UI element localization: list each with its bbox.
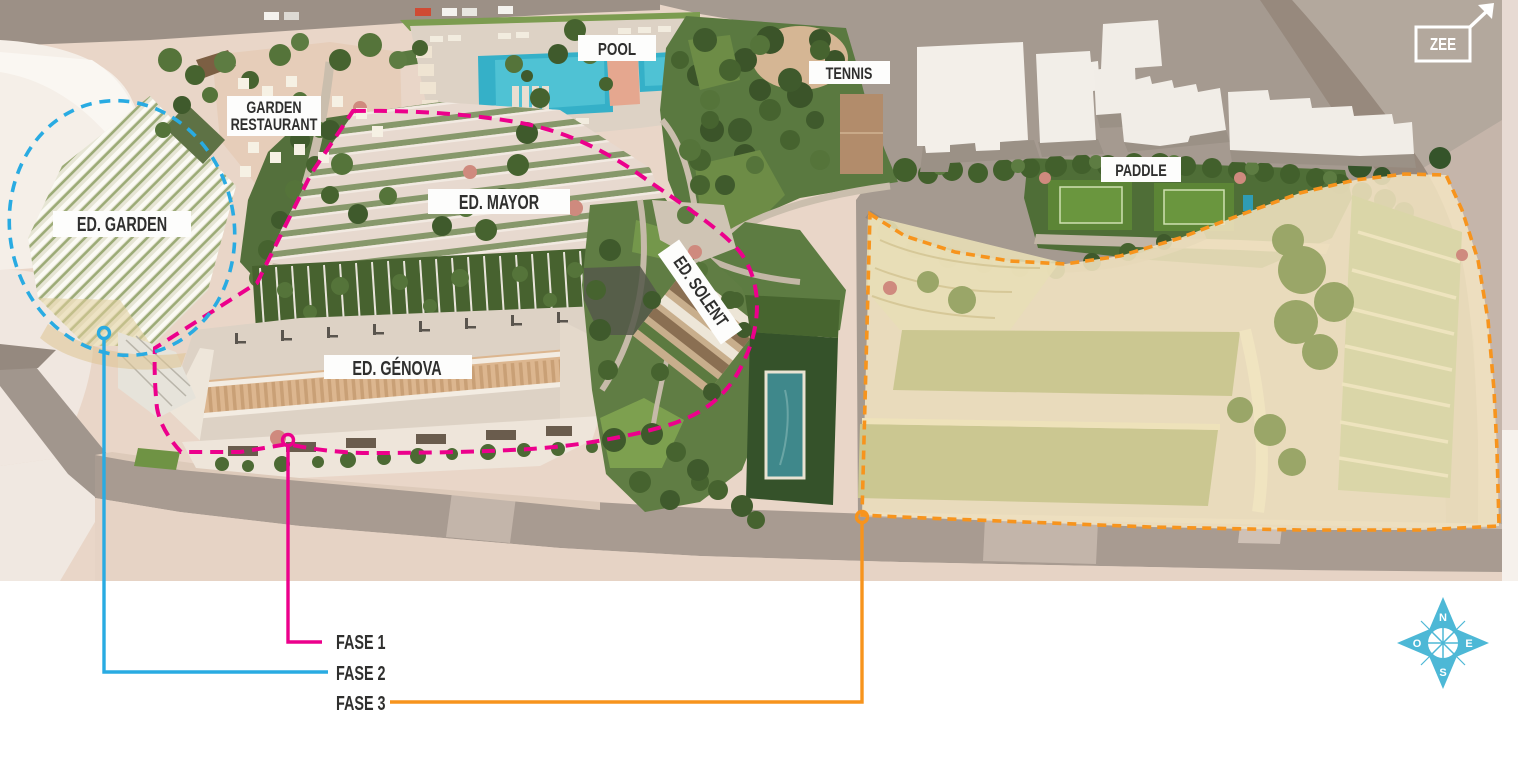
- svg-text:ED. MAYOR: ED. MAYOR: [459, 191, 540, 214]
- svg-text:ED. GARDEN: ED. GARDEN: [77, 213, 167, 236]
- svg-text:ED. GÉNOVA: ED. GÉNOVA: [352, 357, 442, 380]
- svg-text:FASE 2: FASE 2: [336, 662, 386, 685]
- svg-text:N: N: [1439, 612, 1447, 624]
- svg-text:FASE 3: FASE 3: [336, 692, 386, 715]
- svg-text:E: E: [1465, 638, 1472, 650]
- svg-text:S: S: [1439, 667, 1446, 679]
- svg-text:POOL: POOL: [598, 40, 636, 59]
- svg-text:PADDLE: PADDLE: [1115, 161, 1166, 180]
- svg-text:TENNIS: TENNIS: [826, 64, 873, 83]
- svg-text:FASE 1: FASE 1: [336, 631, 386, 654]
- svg-text:O: O: [1413, 638, 1422, 650]
- svg-text:RESTAURANT: RESTAURANT: [231, 115, 319, 134]
- svg-text:ZEE: ZEE: [1430, 35, 1456, 54]
